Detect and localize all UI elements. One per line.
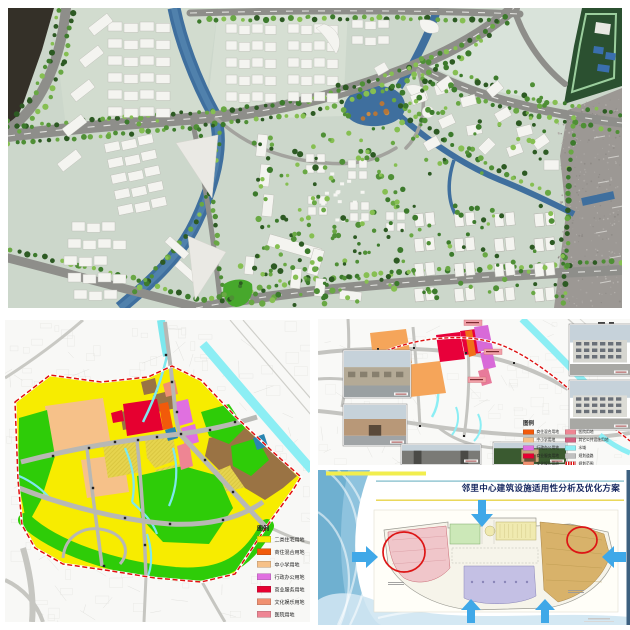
- facilities-legend: 图例 商住混合用地 中小学用地 行政办公用地 商业服务用地 文化娱乐用地 医院用…: [523, 419, 630, 465]
- legend-swatch: [565, 429, 576, 434]
- legend-swatch: [257, 574, 271, 581]
- legend-label: 商住混合用地: [275, 548, 305, 556]
- legend-swatch: [523, 461, 534, 465]
- legend-label: 规划道路: [579, 453, 594, 459]
- legend-item: 文化娱乐用地: [257, 598, 310, 606]
- legend-item: 行政办公用地: [257, 573, 310, 581]
- legend-item: 医院用地: [565, 429, 609, 435]
- legend-label: 行政办公用地: [275, 573, 305, 581]
- legend-item: 医院用地: [257, 611, 310, 619]
- legend-swatch: [565, 453, 576, 458]
- legend-item: 水域: [565, 445, 609, 451]
- legend-label: 中小学用地: [275, 561, 300, 569]
- legend-label: 文化娱乐用地: [537, 461, 560, 465]
- legend-swatch: [257, 611, 271, 618]
- legend-item: 行政办公用地: [523, 445, 559, 451]
- legend-swatch: [523, 429, 534, 434]
- model-photo-image: [8, 8, 622, 308]
- legend-label: 二类住宅用地: [275, 536, 305, 544]
- legend-swatch: [565, 445, 576, 450]
- legend-swatch: [257, 561, 271, 568]
- legend-swatch: [257, 549, 271, 556]
- legend-item: 中小学用地: [523, 437, 559, 443]
- legend-label: 文化娱乐用地: [275, 598, 305, 606]
- legend-label: 中小学用地: [537, 437, 556, 443]
- legend-label: 水域: [579, 445, 587, 451]
- legend-swatch: [257, 536, 271, 543]
- legend-item: 商业服务用地: [257, 586, 310, 594]
- facilities-map-panel: 图例 商住混合用地 中小学用地 行政办公用地 商业服务用地 文化娱乐用地 医院用…: [318, 319, 630, 465]
- legend-item: 商业服务用地: [523, 453, 559, 459]
- legend-label: 商业服务用地: [537, 453, 560, 459]
- planning-collage: 图例 二类住宅用地 商住混合用地 中小学用地 行政办公用地 商业服务用地 文化娱…: [0, 0, 630, 630]
- legend-item: 文化娱乐用地: [523, 461, 559, 465]
- legend-swatch: [523, 445, 534, 450]
- legend-label: 其它公共设施用地: [579, 437, 609, 443]
- legend-label: 规划范围: [579, 461, 594, 465]
- legend-item: 二类住宅用地: [257, 536, 310, 544]
- legend-item: 商住混合用地: [257, 548, 310, 556]
- legend-swatch: [565, 461, 576, 465]
- model-photo-panel: [8, 8, 622, 308]
- landuse-legend: 图例 二类住宅用地 商住混合用地 中小学用地 行政办公用地 商业服务用地 文化娱…: [257, 524, 310, 622]
- legend-item: 其它公共设施用地: [565, 437, 609, 443]
- legend-title: 图例: [523, 419, 630, 427]
- legend-swatch: [257, 599, 271, 606]
- legend-item: 商住混合用地: [523, 429, 559, 435]
- legend-title: 图例: [257, 524, 310, 533]
- legend-label: 行政办公用地: [537, 445, 560, 451]
- legend-label: 医院用地: [579, 429, 594, 435]
- legend-swatch: [257, 586, 271, 593]
- legend-item: 规划范围: [565, 461, 609, 465]
- landuse-map-panel: 图例 二类住宅用地 商住混合用地 中小学用地 行政办公用地 商业服务用地 文化娱…: [5, 320, 310, 622]
- legend-item: 规划道路: [565, 453, 609, 459]
- analysis-slide-panel: 邻里中心建筑设施适用性分析及优化方案: [318, 470, 630, 625]
- legend-label: 商业服务用地: [275, 586, 305, 594]
- legend-swatch: [565, 437, 576, 442]
- legend-label: 医院用地: [275, 611, 295, 619]
- legend-swatch: [523, 453, 534, 458]
- legend-item: 中小学用地: [257, 561, 310, 569]
- legend-label: 商住混合用地: [537, 429, 560, 435]
- legend-swatch: [523, 437, 534, 442]
- slide-title: 邻里中心建筑设施适用性分析及优化方案: [462, 482, 620, 494]
